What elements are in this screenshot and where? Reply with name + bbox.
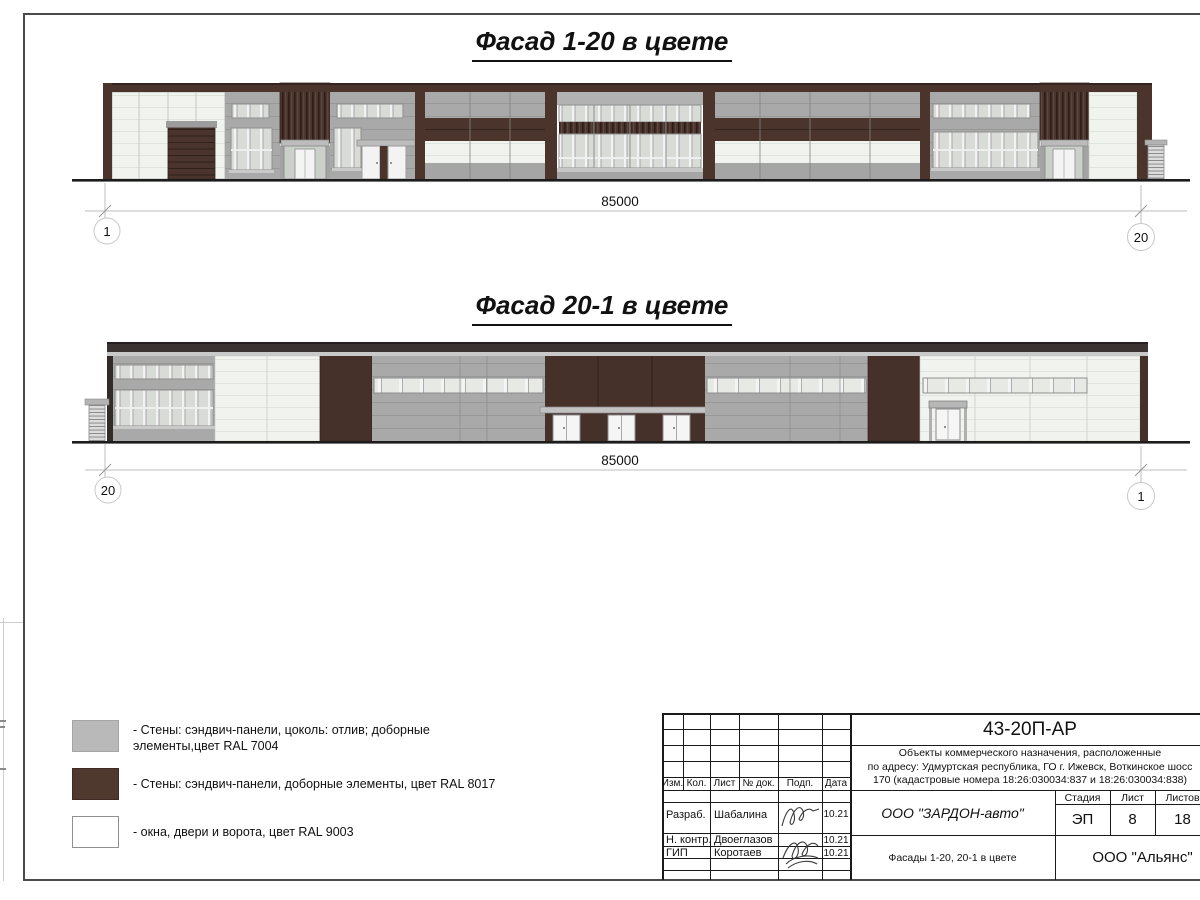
axis-marker-left: 20 [95,477,121,503]
col-header-kol: Кол. [683,777,710,790]
sheets-label: Листов [1155,791,1200,804]
sheet-name: Фасады 1-20, 20-1 в цвете [850,835,1055,880]
entrance-doors [553,415,690,441]
col-header-data: Дата [822,777,850,790]
sheet-margin-line [3,618,4,881]
doc-number: 43-20П-АР [850,716,1200,744]
svg-text:20: 20 [1134,230,1148,245]
legend-swatch-ral8017 [72,768,119,800]
facade-20-1-drawing: 85000 20 1 [60,330,1200,515]
sheets-value: 18 [1155,804,1200,835]
project-description: Объекты коммерческого назначения, распол… [850,747,1200,788]
row-date-gip: 10.21 [822,848,850,859]
signature-marks [778,798,822,876]
axis-marker-right: 20 [1128,224,1155,251]
row-role-razrab: Разраб. [666,808,710,821]
col-header-izm: Изм. [662,777,683,790]
contractor-name: ООО "Альянс" [1055,835,1200,880]
axis-marker-right: 1 [1128,483,1155,510]
row-role-nkontr: Н. контр. [666,834,714,846]
sheet-frame-top [23,13,1200,15]
sheet-value: 8 [1110,804,1155,835]
col-header-list: Лист [710,777,739,790]
margin-mark [0,720,6,722]
col-header-doc: № док. [739,777,778,790]
row-name-razrab: Шабалина [714,808,776,821]
title-block: Изм. Кол. Лист № док. Подп. Дата Разраб.… [662,713,1200,880]
facade-1-20-title: Фасад 1-20 в цвете [402,26,802,62]
facade-1-20-title-text: Фасад 1-20 в цвете [472,26,733,62]
svg-text:1: 1 [1137,489,1144,504]
svg-text:1: 1 [103,224,110,239]
margin-mark [0,726,5,728]
ground-line [72,179,1190,182]
row-date-razrab: 10.21 [822,808,850,821]
row-name-gip: Коротаев [714,847,776,858]
stage-value: ЭП [1055,804,1110,835]
legend-label-ral8017: - Стены: сэндвич-панели, доборные элемен… [133,776,495,792]
axis-marker-left: 1 [94,218,120,244]
company-name: ООО "ЗАРДОН-авто" [850,790,1055,835]
legend-label-ral9003: - окна, двери и ворота, цвет RAL 9003 [133,824,354,840]
stage-label: Стадия [1055,791,1110,804]
dimension-label: 85000 [601,453,639,468]
facade-20-1-title-text: Фасад 20-1 в цвете [472,290,733,326]
sheet-margin-line [0,622,23,623]
facade-1-20-drawing: 85000 1 20 [60,70,1200,260]
legend-label-ral7004: - Стены: сэндвич-панели, цоколь: отлив; … [133,722,430,754]
sheet-frame-left [23,13,25,881]
legend-swatch-ral9003 [72,816,119,848]
col-header-podp: Подп. [778,777,822,790]
row-date-nkontr: 10.21 [822,834,850,846]
facade-20-1-title: Фасад 20-1 в цвете [402,290,802,326]
margin-mark [0,768,6,770]
row-name-nkontr: Двоеглазов [714,834,778,846]
dimension-label: 85000 [601,194,639,209]
row-role-gip: ГИП [666,847,710,858]
svg-text:20: 20 [101,483,115,498]
ground-line [72,441,1190,444]
sheet-label: Лист [1110,791,1155,804]
legend-swatch-ral7004 [72,720,119,752]
